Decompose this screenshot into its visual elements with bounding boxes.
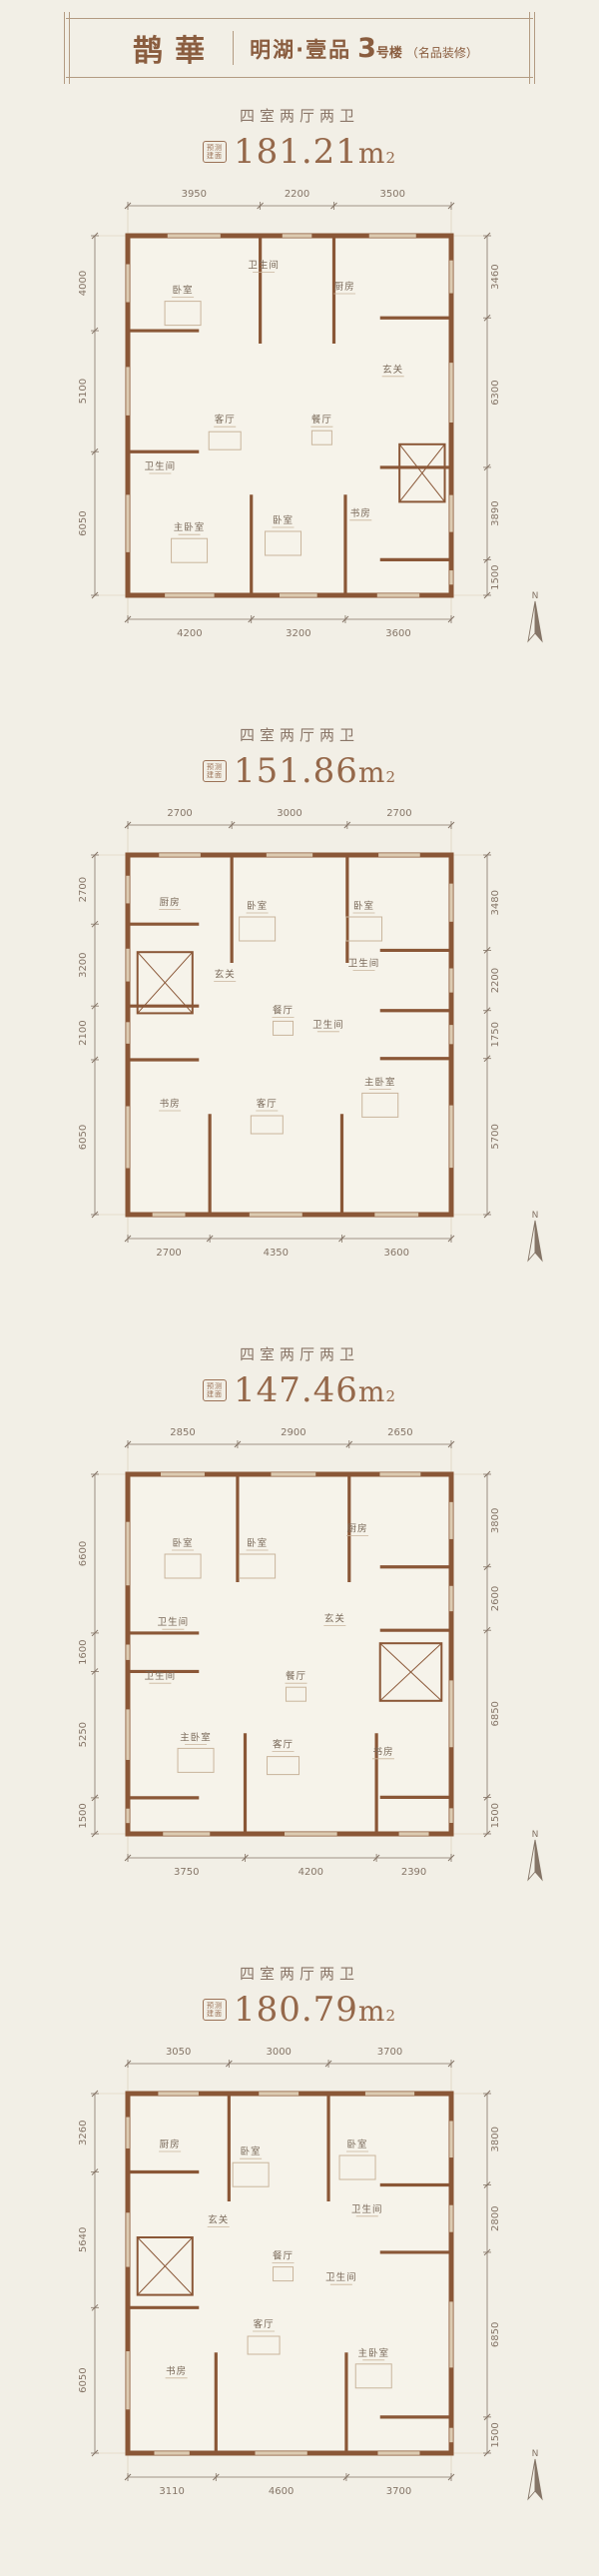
room-label: 主卧室 xyxy=(174,521,206,533)
room-label: 主卧室 xyxy=(180,1731,212,1743)
room-label: 书房 xyxy=(160,1098,181,1110)
north-arrow xyxy=(535,601,542,641)
dim-label: 2800 xyxy=(490,2205,501,2230)
dim-label: 3200 xyxy=(286,628,310,639)
area-unit: m xyxy=(358,1995,386,2028)
dim-label: 1500 xyxy=(78,1803,89,1828)
plaque-rod-left xyxy=(64,12,70,84)
area-unit: m xyxy=(358,1375,386,1408)
unit-layout-label: 四室两厅两卫 xyxy=(0,1963,599,1984)
dim-label: 3110 xyxy=(159,2486,184,2497)
unit-section-2: 四室两厅两卫 预测建面 151.86m2 2700300027002700435… xyxy=(0,718,599,1337)
dim-label: 2850 xyxy=(170,1427,195,1438)
dim-label: 2650 xyxy=(387,1427,412,1438)
dim-label: 4600 xyxy=(269,2486,294,2497)
north-arrow xyxy=(535,1840,542,1880)
unit-layout-label: 四室两厅两卫 xyxy=(0,105,599,126)
area-value: 181.21 xyxy=(234,132,358,172)
dim-label: 3600 xyxy=(385,628,410,639)
area-value: 147.46 xyxy=(234,1370,358,1410)
room-label: 卧室 xyxy=(173,285,194,297)
dim-label: 3800 xyxy=(490,1508,501,1533)
dim-label: 3500 xyxy=(380,189,405,200)
unit-head: 四室两厅两卫 预测建面 180.79m2 xyxy=(0,1963,599,2030)
room-label: 卫生间 xyxy=(325,2271,357,2283)
dim-label: 4200 xyxy=(177,628,202,639)
north-label: N xyxy=(532,591,539,601)
dim-label: 2900 xyxy=(281,1427,305,1438)
dim-label: 6850 xyxy=(490,2322,501,2347)
dim-label: 3950 xyxy=(182,189,207,200)
dim-label: 5640 xyxy=(78,2227,89,2252)
badge-line-2: 建面 xyxy=(207,771,223,779)
room-label: 玄关 xyxy=(208,2214,229,2226)
decoration-note: （名品装修） xyxy=(406,44,478,61)
dim-label: 4350 xyxy=(264,1248,289,1259)
north-arrow xyxy=(528,2459,535,2499)
plaque-rod-right xyxy=(529,12,535,84)
dim-label: 3000 xyxy=(266,2047,291,2058)
dim-label: 2700 xyxy=(78,877,89,902)
dim-label: 2600 xyxy=(490,1586,501,1611)
north-arrow xyxy=(528,1221,535,1261)
building-suffix: 号楼 xyxy=(376,42,402,61)
room-label: 客厅 xyxy=(215,414,236,426)
dim-label: 1500 xyxy=(490,564,501,589)
room-label: 卧室 xyxy=(273,514,294,526)
dim-label: 3800 xyxy=(490,2127,501,2151)
room-label: 书房 xyxy=(166,2365,187,2377)
room-label: 卧室 xyxy=(353,900,374,912)
room-label: 卫生间 xyxy=(312,1019,344,1031)
dim-label: 2700 xyxy=(386,808,411,819)
north-arrow xyxy=(535,1221,542,1261)
area-unit: m xyxy=(358,137,386,170)
dim-label: 6050 xyxy=(78,510,89,535)
dim-label: 3600 xyxy=(384,1248,409,1259)
north-arrow xyxy=(535,2459,542,2499)
room-label: 卫生间 xyxy=(248,259,280,271)
dim-label: 3700 xyxy=(386,2486,411,2497)
area-unit: m xyxy=(358,756,386,789)
room-label: 主卧室 xyxy=(364,1076,396,1088)
dim-label: 3700 xyxy=(377,2047,402,2058)
unit-head: 四室两厅两卫 预测建面 147.46m2 xyxy=(0,1343,599,1410)
area-type-badge: 预测建面 xyxy=(203,1379,227,1401)
plan-interior xyxy=(128,1474,451,1834)
dim-label: 4200 xyxy=(299,1867,323,1878)
brand-logo: 鹊華 xyxy=(121,26,217,70)
dim-label: 3890 xyxy=(490,500,501,525)
unit-section-4: 四室两厅两卫 预测建面 180.79m2 3050300037003110460… xyxy=(0,1957,599,2576)
floor-plan-2: 2700300027002700435036002700320021006050… xyxy=(0,795,599,1265)
room-label: 卧室 xyxy=(247,1537,268,1549)
dim-label: 6600 xyxy=(78,1541,89,1566)
unit-area: 151.86m2 xyxy=(234,751,396,791)
dim-label: 6850 xyxy=(490,1701,501,1726)
room-label: 玄关 xyxy=(382,364,403,376)
dim-label: 5700 xyxy=(490,1124,501,1149)
dim-label: 1500 xyxy=(490,1803,501,1828)
header-divider xyxy=(233,31,234,65)
badge-line-1: 预测 xyxy=(207,144,223,152)
area-type-badge: 预测建面 xyxy=(203,1999,227,2021)
room-label: 卫生间 xyxy=(348,958,380,970)
room-label: 卫生间 xyxy=(145,460,177,472)
dim-label: 2700 xyxy=(167,808,192,819)
room-label: 主卧室 xyxy=(357,2347,389,2359)
dim-label: 3260 xyxy=(78,2121,89,2146)
area-type-badge: 预测建面 xyxy=(203,760,227,782)
north-label: N xyxy=(532,1830,539,1840)
room-label: 书房 xyxy=(372,1746,393,1758)
dim-label: 3460 xyxy=(490,264,501,289)
dim-label: 1750 xyxy=(490,1022,501,1047)
badge-line-1: 预测 xyxy=(207,1382,223,1390)
room-label: 玄关 xyxy=(215,968,236,980)
dim-label: 5250 xyxy=(78,1722,89,1747)
north-label: N xyxy=(532,2449,539,2459)
dim-label: 3000 xyxy=(277,808,301,819)
room-label: 客厅 xyxy=(257,1098,278,1110)
room-label: 卧室 xyxy=(347,2139,368,2150)
unit-area: 180.79m2 xyxy=(234,1990,396,2030)
dim-label: 1500 xyxy=(490,2422,501,2447)
room-label: 书房 xyxy=(350,507,371,519)
dim-label: 6300 xyxy=(490,380,501,405)
north-arrow xyxy=(528,1840,535,1880)
area-type-badge: 预测建面 xyxy=(203,141,227,163)
room-label: 卧室 xyxy=(173,1537,194,1549)
dim-label: 3750 xyxy=(174,1867,199,1878)
room-label: 卫生间 xyxy=(351,2203,383,2215)
dim-label: 2700 xyxy=(156,1248,181,1259)
room-label: 卫生间 xyxy=(158,1616,190,1628)
room-label: 厨房 xyxy=(334,281,355,293)
room-label: 餐厅 xyxy=(273,1004,294,1016)
dim-label: 3480 xyxy=(490,890,501,915)
room-label: 厨房 xyxy=(160,2139,181,2150)
dim-label: 6050 xyxy=(78,2367,89,2392)
dim-label: 3050 xyxy=(166,2047,191,2058)
unit-head: 四室两厅两卫 预测建面 181.21m2 xyxy=(0,105,599,172)
header: 鹊華 明湖·壹品 3 号楼 （名品装修） xyxy=(0,0,599,99)
area-value: 180.79 xyxy=(234,1990,358,2030)
dim-label: 4000 xyxy=(78,271,89,296)
dim-label: 2390 xyxy=(401,1867,426,1878)
unit-layout-label: 四室两厅两卫 xyxy=(0,1343,599,1364)
north-label: N xyxy=(532,1211,539,1221)
room-label: 餐厅 xyxy=(311,414,332,426)
floor-plan-1: 3950220035004200320036004000510060503460… xyxy=(0,176,599,645)
room-label: 卧室 xyxy=(247,900,268,912)
unit-section-3: 四室两厅两卫 预测建面 147.46m2 2850290026503750420… xyxy=(0,1337,599,1957)
badge-line-1: 预测 xyxy=(207,763,223,771)
unit-section-1: 四室两厅两卫 预测建面 181.21m2 3950220035004200320… xyxy=(0,99,599,718)
badge-line-2: 建面 xyxy=(207,152,223,160)
dim-label: 3200 xyxy=(78,952,89,977)
badge-line-2: 建面 xyxy=(207,2010,223,2018)
room-label: 餐厅 xyxy=(286,1670,306,1682)
room-label: 卫生间 xyxy=(145,1670,177,1682)
room-label: 玄关 xyxy=(324,1613,345,1625)
unit-area: 147.46m2 xyxy=(234,1370,396,1410)
project-name: 明湖·壹品 xyxy=(250,34,351,64)
area-value: 151.86 xyxy=(234,751,358,791)
room-label: 客厅 xyxy=(254,2318,275,2330)
unit-head: 四室两厅两卫 预测建面 151.86m2 xyxy=(0,724,599,791)
dim-label: 1600 xyxy=(78,1639,89,1664)
dim-label: 2100 xyxy=(78,1020,89,1045)
room-label: 餐厅 xyxy=(273,2250,294,2262)
project-title: 明湖·壹品 3 号楼 （名品装修） xyxy=(250,33,478,64)
room-label: 客厅 xyxy=(273,1739,294,1751)
dim-label: 6050 xyxy=(78,1125,89,1150)
building-number: 3 xyxy=(357,33,376,64)
dim-label: 5100 xyxy=(78,379,89,404)
brand-plaque: 鹊華 明湖·壹品 3 号楼 （名品装修） xyxy=(66,18,533,78)
dim-label: 2200 xyxy=(490,968,501,993)
dim-label: 2200 xyxy=(285,189,309,200)
north-arrow xyxy=(528,601,535,641)
unit-area: 181.21m2 xyxy=(234,132,396,172)
floor-plan-4: 3050300037003110460037003260564060503800… xyxy=(0,2034,599,2503)
floor-plan-3: 2850290026503750420023906600160052501500… xyxy=(0,1414,599,1884)
room-label: 卧室 xyxy=(241,2146,262,2157)
room-label: 厨房 xyxy=(347,1523,368,1535)
unit-layout-label: 四室两厅两卫 xyxy=(0,724,599,745)
room-label: 厨房 xyxy=(160,896,181,908)
badge-line-1: 预测 xyxy=(207,2002,223,2010)
badge-line-2: 建面 xyxy=(207,1390,223,1398)
